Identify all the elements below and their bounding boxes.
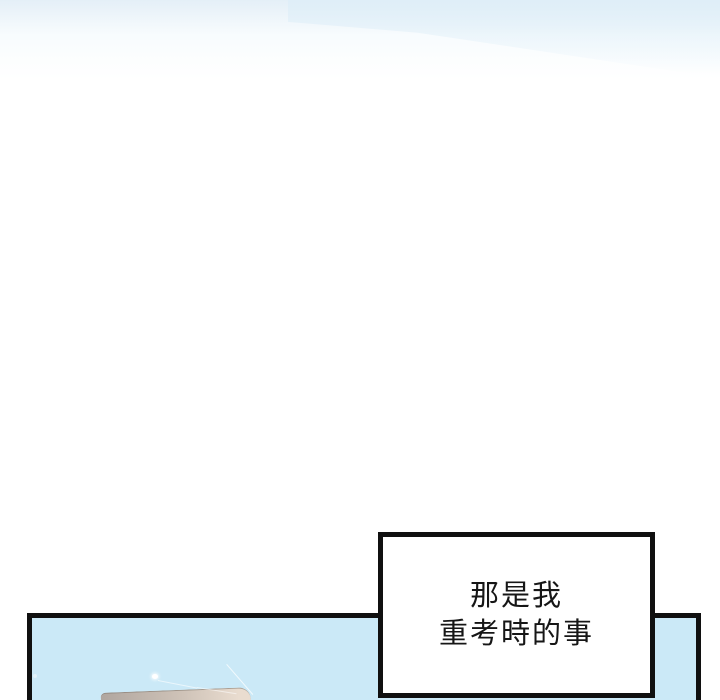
antenna-wire — [158, 680, 197, 689]
speech-line-1: 那是我 — [470, 577, 563, 615]
rooftop — [101, 687, 252, 700]
light-glint — [152, 674, 158, 679]
speech-bubble: 那是我 重考時的事 — [378, 532, 655, 698]
comic-page: 那是我 重考時的事 — [0, 0, 720, 700]
speech-line-2: 重考時的事 — [439, 615, 594, 653]
light-speck — [33, 674, 37, 678]
